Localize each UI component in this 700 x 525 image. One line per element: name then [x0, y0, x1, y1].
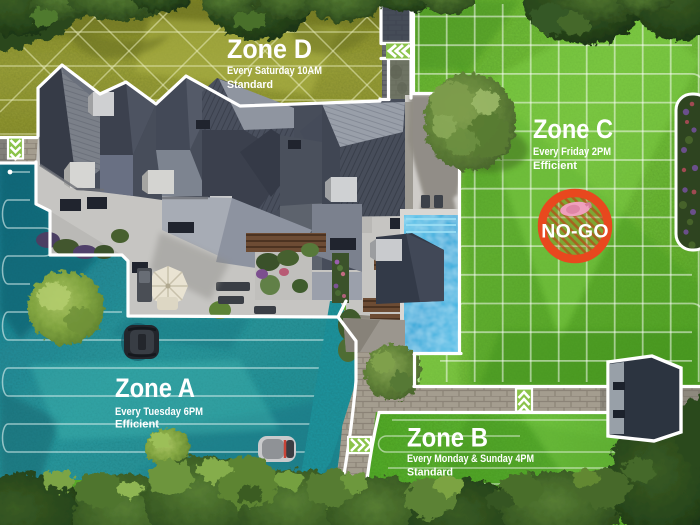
- svg-text:Every Saturday 10AM: Every Saturday 10AM: [227, 65, 322, 77]
- svg-text:Zone B: Zone B: [407, 423, 488, 453]
- svg-text:Zone D: Zone D: [227, 34, 312, 64]
- svg-text:Efficient: Efficient: [115, 419, 159, 431]
- svg-text:Efficient: Efficient: [533, 160, 577, 172]
- svg-text:Every Friday 2PM: Every Friday 2PM: [533, 146, 611, 158]
- svg-text:Zone C: Zone C: [533, 114, 613, 144]
- svg-text:Standard: Standard: [227, 79, 273, 91]
- svg-text:Every Monday & Sunday 4PM: Every Monday & Sunday 4PM: [407, 453, 534, 465]
- svg-text:Zone A: Zone A: [115, 373, 195, 403]
- svg-text:Every Tuesday 6PM: Every Tuesday 6PM: [115, 406, 203, 418]
- svg-text:NO-GO: NO-GO: [541, 221, 609, 243]
- svg-text:Standard: Standard: [407, 467, 453, 479]
